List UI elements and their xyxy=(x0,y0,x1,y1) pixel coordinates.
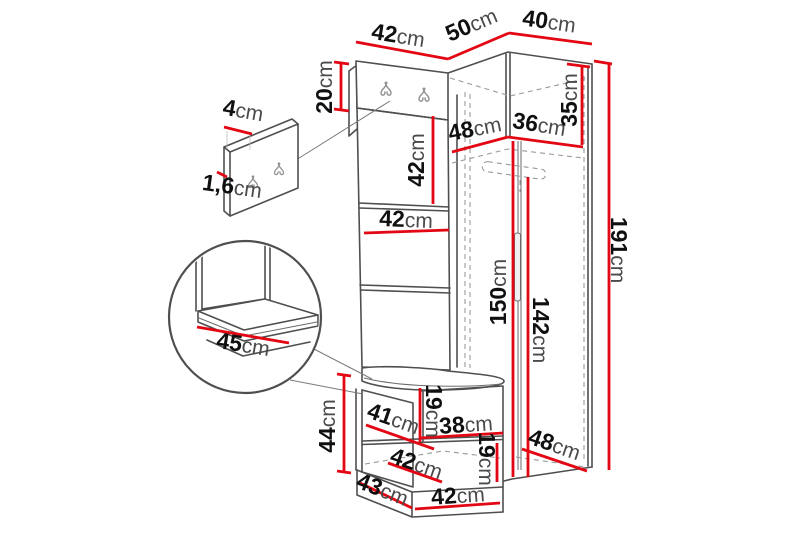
dimension-label-interior-height-150: 150cm xyxy=(485,259,511,325)
dimension-label-bench-base-width-42: 42cm xyxy=(430,480,485,510)
seat-detail-callout xyxy=(169,240,372,394)
dimension-label-bench-lower-height-19: 19cm xyxy=(474,432,500,486)
dimension-label-panel-width-42: 42cm xyxy=(379,205,433,233)
dimension-label-top-width-40: 40cm xyxy=(521,4,578,37)
door-handle xyxy=(515,233,521,301)
dimension-label-bench-inner-width-42: 42cm xyxy=(387,442,446,484)
dimension-line xyxy=(567,64,590,67)
furniture-dimension-drawing: 42cm50cm40cm20cm4cm1,6cm42cm42cm48cm36cm… xyxy=(0,0,800,533)
dimension-top-width-40 xyxy=(509,33,592,44)
dimension-wardrobe-top-width-36 xyxy=(508,137,583,147)
dimension-line xyxy=(337,471,351,473)
dimension-label-door-height-142: 142cm xyxy=(528,297,554,363)
wardrobe-right-edge xyxy=(588,64,592,467)
dimension-line xyxy=(337,374,351,376)
corner-pillar-edge xyxy=(506,53,510,138)
dimension-line xyxy=(509,33,592,44)
dimension-label-bench-opening-width-41: 41cm xyxy=(364,397,423,439)
panel-body xyxy=(357,108,450,370)
detail-plate-front xyxy=(230,124,298,216)
dimension-hook-plate-width-4 xyxy=(224,127,252,134)
dimension-line xyxy=(508,137,583,147)
dimension-label-hook-plate-width-4: 4cm xyxy=(221,94,266,127)
dimension-line xyxy=(224,127,252,134)
dimension-label-top-shelf-height-35: 35cm xyxy=(556,73,582,127)
bench-left-edges xyxy=(356,389,362,472)
hook-board xyxy=(356,61,448,120)
dimension-label-panel-section-height-42: 42cm xyxy=(403,133,429,187)
callout-leader-line xyxy=(290,380,363,394)
diagram-canvas: 42cm50cm40cm20cm4cm1,6cm42cm42cm48cm36cm… xyxy=(0,0,800,533)
wardrobe-top-edges xyxy=(448,52,592,73)
dimension-label-hook-panel-height-20: 20cm xyxy=(311,60,337,114)
dimension-label-bench-height-44: 44cm xyxy=(314,399,340,453)
dimension-line xyxy=(594,61,612,64)
dimension-label-wardrobe-height-191: 191cm xyxy=(606,217,632,283)
